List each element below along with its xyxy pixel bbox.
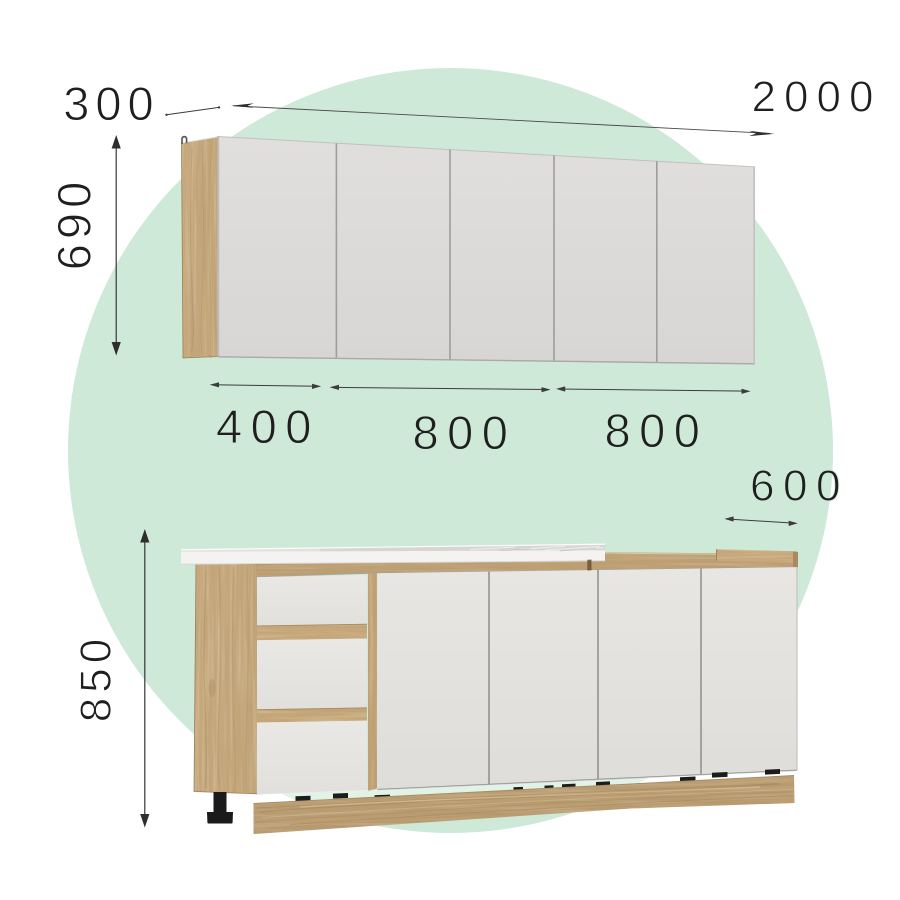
svg-text:600: 600 xyxy=(750,462,849,511)
svg-text:800: 800 xyxy=(605,404,709,457)
svg-text:400: 400 xyxy=(216,400,320,453)
svg-text:2000: 2000 xyxy=(752,73,882,122)
svg-text:850: 850 xyxy=(72,634,121,722)
svg-text:690: 690 xyxy=(48,177,101,270)
svg-text:300: 300 xyxy=(63,77,159,130)
svg-text:800: 800 xyxy=(413,406,517,459)
